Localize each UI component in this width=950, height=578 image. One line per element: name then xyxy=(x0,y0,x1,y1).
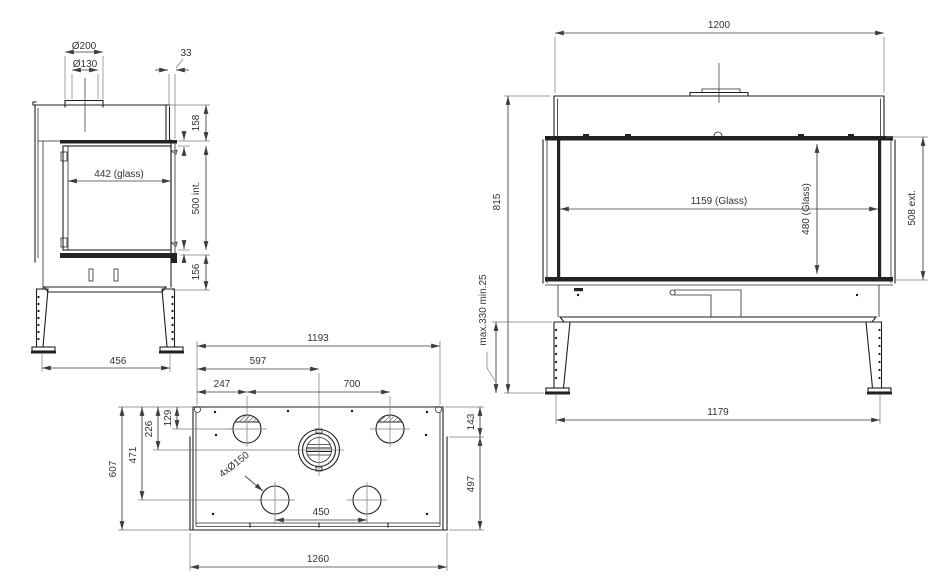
side-view-outline xyxy=(31,78,184,354)
dim-front-feet-spacing-label: 1179 xyxy=(707,407,729,418)
dim-hole1-offset-label: 247 xyxy=(214,379,231,390)
side-view: Ø200 Ø130 33 158 4 442 (glass) xyxy=(31,41,210,372)
side-right-foot xyxy=(160,347,183,351)
dim-side-glass-width-label: 442 (glass) xyxy=(94,169,143,180)
dim-plan-inner-width-label: 1193 xyxy=(307,333,329,344)
dim-overall-width-label: 1200 xyxy=(708,20,731,31)
plan-view-dimensions: 1193 597 247 700 129 226 471 607 xyxy=(108,333,484,571)
side-leg-holes xyxy=(37,296,173,340)
plan-view: 1193 597 247 700 129 226 471 607 xyxy=(108,333,484,571)
door-handle xyxy=(670,290,741,317)
front-plinth-rail xyxy=(560,317,876,322)
dim-hole-row-depth-label: 129 xyxy=(163,409,174,426)
side-view-dimensions: Ø200 Ø130 33 158 4 442 (glass) xyxy=(42,41,210,372)
dim-front-glass-height-label: 480 (Glass) xyxy=(801,183,812,235)
front-glass-top-frame xyxy=(545,136,893,141)
front-view: 1200 815 max.330 min.25 1159 (Glass) 480… xyxy=(478,20,928,424)
plan-flue-outlet xyxy=(296,429,344,471)
dim-flue-offset-label: 597 xyxy=(250,356,267,367)
side-glass-bottom-frame xyxy=(60,253,177,258)
dim-side-feet-spacing-label: 456 xyxy=(110,356,127,367)
dim-hood-height-label: 158 xyxy=(191,114,202,131)
dim-flue-row-depth-label: 226 xyxy=(144,420,155,437)
dim-gap-top-label: 4 xyxy=(170,149,181,155)
note-holes-label: 4xØ150 xyxy=(217,450,252,481)
dim-hole-spacing-label: 700 xyxy=(344,379,361,390)
dim-gap-bottom-label: 4 xyxy=(170,241,181,247)
technical-drawing-page: Ø200 Ø130 33 158 4 442 (glass) xyxy=(0,0,950,578)
side-glass-top-frame xyxy=(60,140,177,144)
front-view-outline xyxy=(543,63,895,395)
front-right-foot xyxy=(868,388,891,392)
front-left-foot xyxy=(546,388,569,392)
latch-detail xyxy=(574,288,583,291)
dim-interior-height-label: 500 int. xyxy=(191,182,202,215)
dim-plan-inner-depth-label: 607 xyxy=(108,460,119,477)
dim-rear-hole-row-depth-label: 471 xyxy=(128,446,139,463)
front-glass-bottom-frame xyxy=(545,277,893,282)
dim-glass-offset-label: 33 xyxy=(180,48,192,59)
dim-front-glass-width-label: 1159 (Glass) xyxy=(691,196,748,207)
dim-rear-hole-spacing-label: 450 xyxy=(313,507,330,518)
front-glass-left-frame xyxy=(557,140,560,278)
side-glass-panel xyxy=(63,146,171,250)
side-plinth-rail xyxy=(44,287,166,292)
dim-plan-overall-width-label: 1260 xyxy=(307,554,330,565)
dim-plinth-height-label: 156 xyxy=(191,263,202,280)
dim-flue-inner-label: Ø130 xyxy=(73,59,98,70)
dim-overall-height-label: 815 xyxy=(492,193,503,210)
dim-side-depth-label: 497 xyxy=(466,475,477,492)
front-glass-right-frame xyxy=(878,140,881,278)
front-view-dimensions: 1200 815 max.330 min.25 1159 (Glass) 480… xyxy=(478,20,928,424)
dim-leg-adjust-label: max.330 min.25 xyxy=(478,274,489,346)
fireplace-technical-drawing: Ø200 Ø130 33 158 4 442 (glass) xyxy=(0,0,950,578)
front-leg-holes xyxy=(555,329,881,379)
dim-front-band-depth-label: 143 xyxy=(466,413,477,430)
dim-flue-outer-label: Ø200 xyxy=(72,41,97,52)
side-left-foot xyxy=(32,347,55,351)
dim-exterior-height-label: 508 ext. xyxy=(907,190,918,226)
